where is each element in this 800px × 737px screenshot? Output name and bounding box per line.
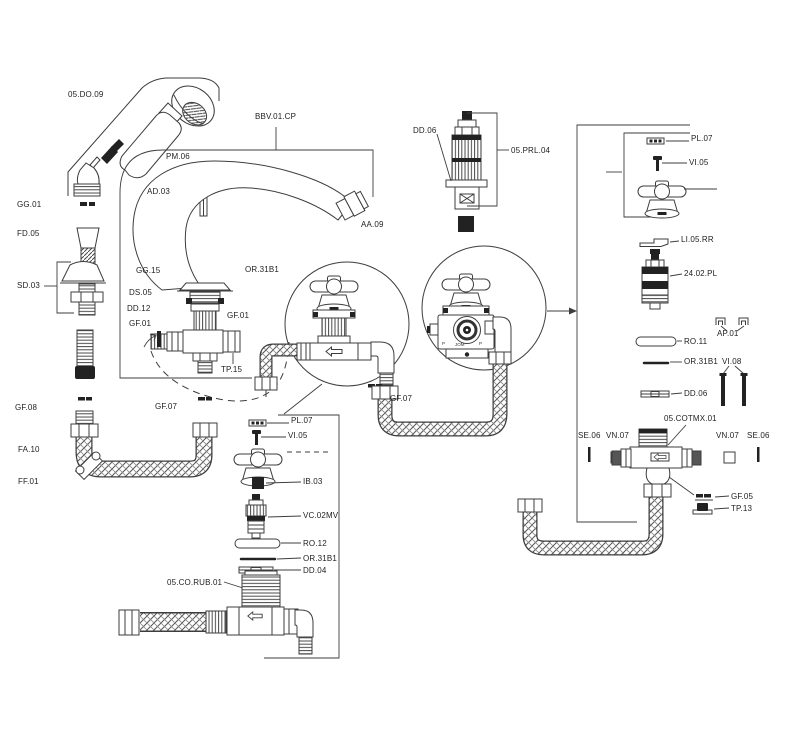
- mixer-valve-group: [518, 425, 760, 548]
- label-05cotmx01: 05.COTMX.01: [664, 414, 717, 423]
- label-li05rr: LI.05.RR: [681, 235, 714, 244]
- label-vi08: VI.08: [722, 357, 741, 366]
- label-se06-right: SE.06: [747, 431, 770, 440]
- label-05prl04: 05.PRL.04: [511, 146, 550, 155]
- label-gf07-left: GF.07: [155, 402, 177, 411]
- label-vi05-right: VI.05: [689, 158, 708, 167]
- label-ro12: RO.12: [303, 539, 327, 548]
- label-gf05: GF.05: [731, 492, 753, 501]
- label-05corub01: 05.CO.RUB.01: [167, 578, 222, 587]
- label-vn07-left: VN.07: [606, 431, 629, 440]
- label-sd03: SD.03: [17, 281, 40, 290]
- label-gf01-right: GF.01: [227, 311, 249, 320]
- valve-mark-left: P: [442, 341, 445, 346]
- valve-mark-right: P: [479, 341, 482, 346]
- label-tp15: TP.15: [221, 365, 242, 374]
- label-ro11: RO.11: [684, 337, 707, 346]
- label-se06-left: SE.06: [578, 431, 601, 440]
- label-dd06-top: DD.06: [413, 126, 436, 135]
- label-fa10: FA.10: [18, 445, 40, 454]
- label-fd05: FD.05: [17, 229, 40, 238]
- label-bbv01cp: BBV.01.CP: [255, 112, 296, 121]
- label-pl07-bottom: PL.07: [291, 416, 313, 425]
- label-tp13: TP.13: [731, 504, 752, 513]
- valve-mark-center: JOM: [455, 342, 465, 347]
- label-ds05: DS.05: [129, 288, 152, 297]
- label-aa09: AA.09: [361, 220, 384, 229]
- spout-curve: [133, 161, 352, 290]
- label-dd04: DD.04: [303, 566, 326, 575]
- label-dd12: DD.12: [127, 304, 150, 313]
- label-vn07-right: VN.07: [716, 431, 739, 440]
- label-pl07-right: PL.07: [691, 134, 713, 143]
- label-vc02mv: VC.02MV: [303, 511, 338, 520]
- bottom-column-group: [119, 384, 339, 658]
- fa10-hose-group: [71, 397, 217, 479]
- label-2402pl: 24.02.PL: [684, 269, 717, 278]
- parts-diagram: 05.DO.09 GG.01 FD.05 SD.03 GF.08 FA.10 F…: [0, 0, 800, 737]
- label-gf08: GF.08: [15, 403, 37, 412]
- left-column-parts: [44, 202, 106, 401]
- label-or31b1-center: OR.31B1: [245, 265, 279, 274]
- label-gf07-circle: GF.07: [390, 394, 412, 403]
- label-gg01: GG.01: [17, 200, 41, 209]
- label-gf01-left: GF.01: [129, 319, 151, 328]
- label-ap01: AP.01: [717, 329, 739, 338]
- label-or31b1-right: OR.31B1: [684, 357, 718, 366]
- label-ib03: IB.03: [303, 477, 322, 486]
- label-ad03: AD.03: [147, 187, 170, 196]
- prl04-cartridge-group: [437, 111, 509, 232]
- label-pm06: PM.06: [166, 152, 190, 161]
- label-or31b1-bottom: OR.31B1: [303, 554, 337, 563]
- arrow-to-bracket: [569, 308, 577, 315]
- label-dd06-right: DD.06: [684, 389, 707, 398]
- detail-circle-left: [255, 262, 409, 397]
- label-vi05-bottom: VI.05: [288, 431, 307, 440]
- label-05do09: 05.DO.09: [68, 90, 103, 99]
- label-gg15: GG.15: [136, 266, 160, 275]
- diagram-line-art: [0, 0, 800, 737]
- label-ff01: FF.01: [18, 477, 39, 486]
